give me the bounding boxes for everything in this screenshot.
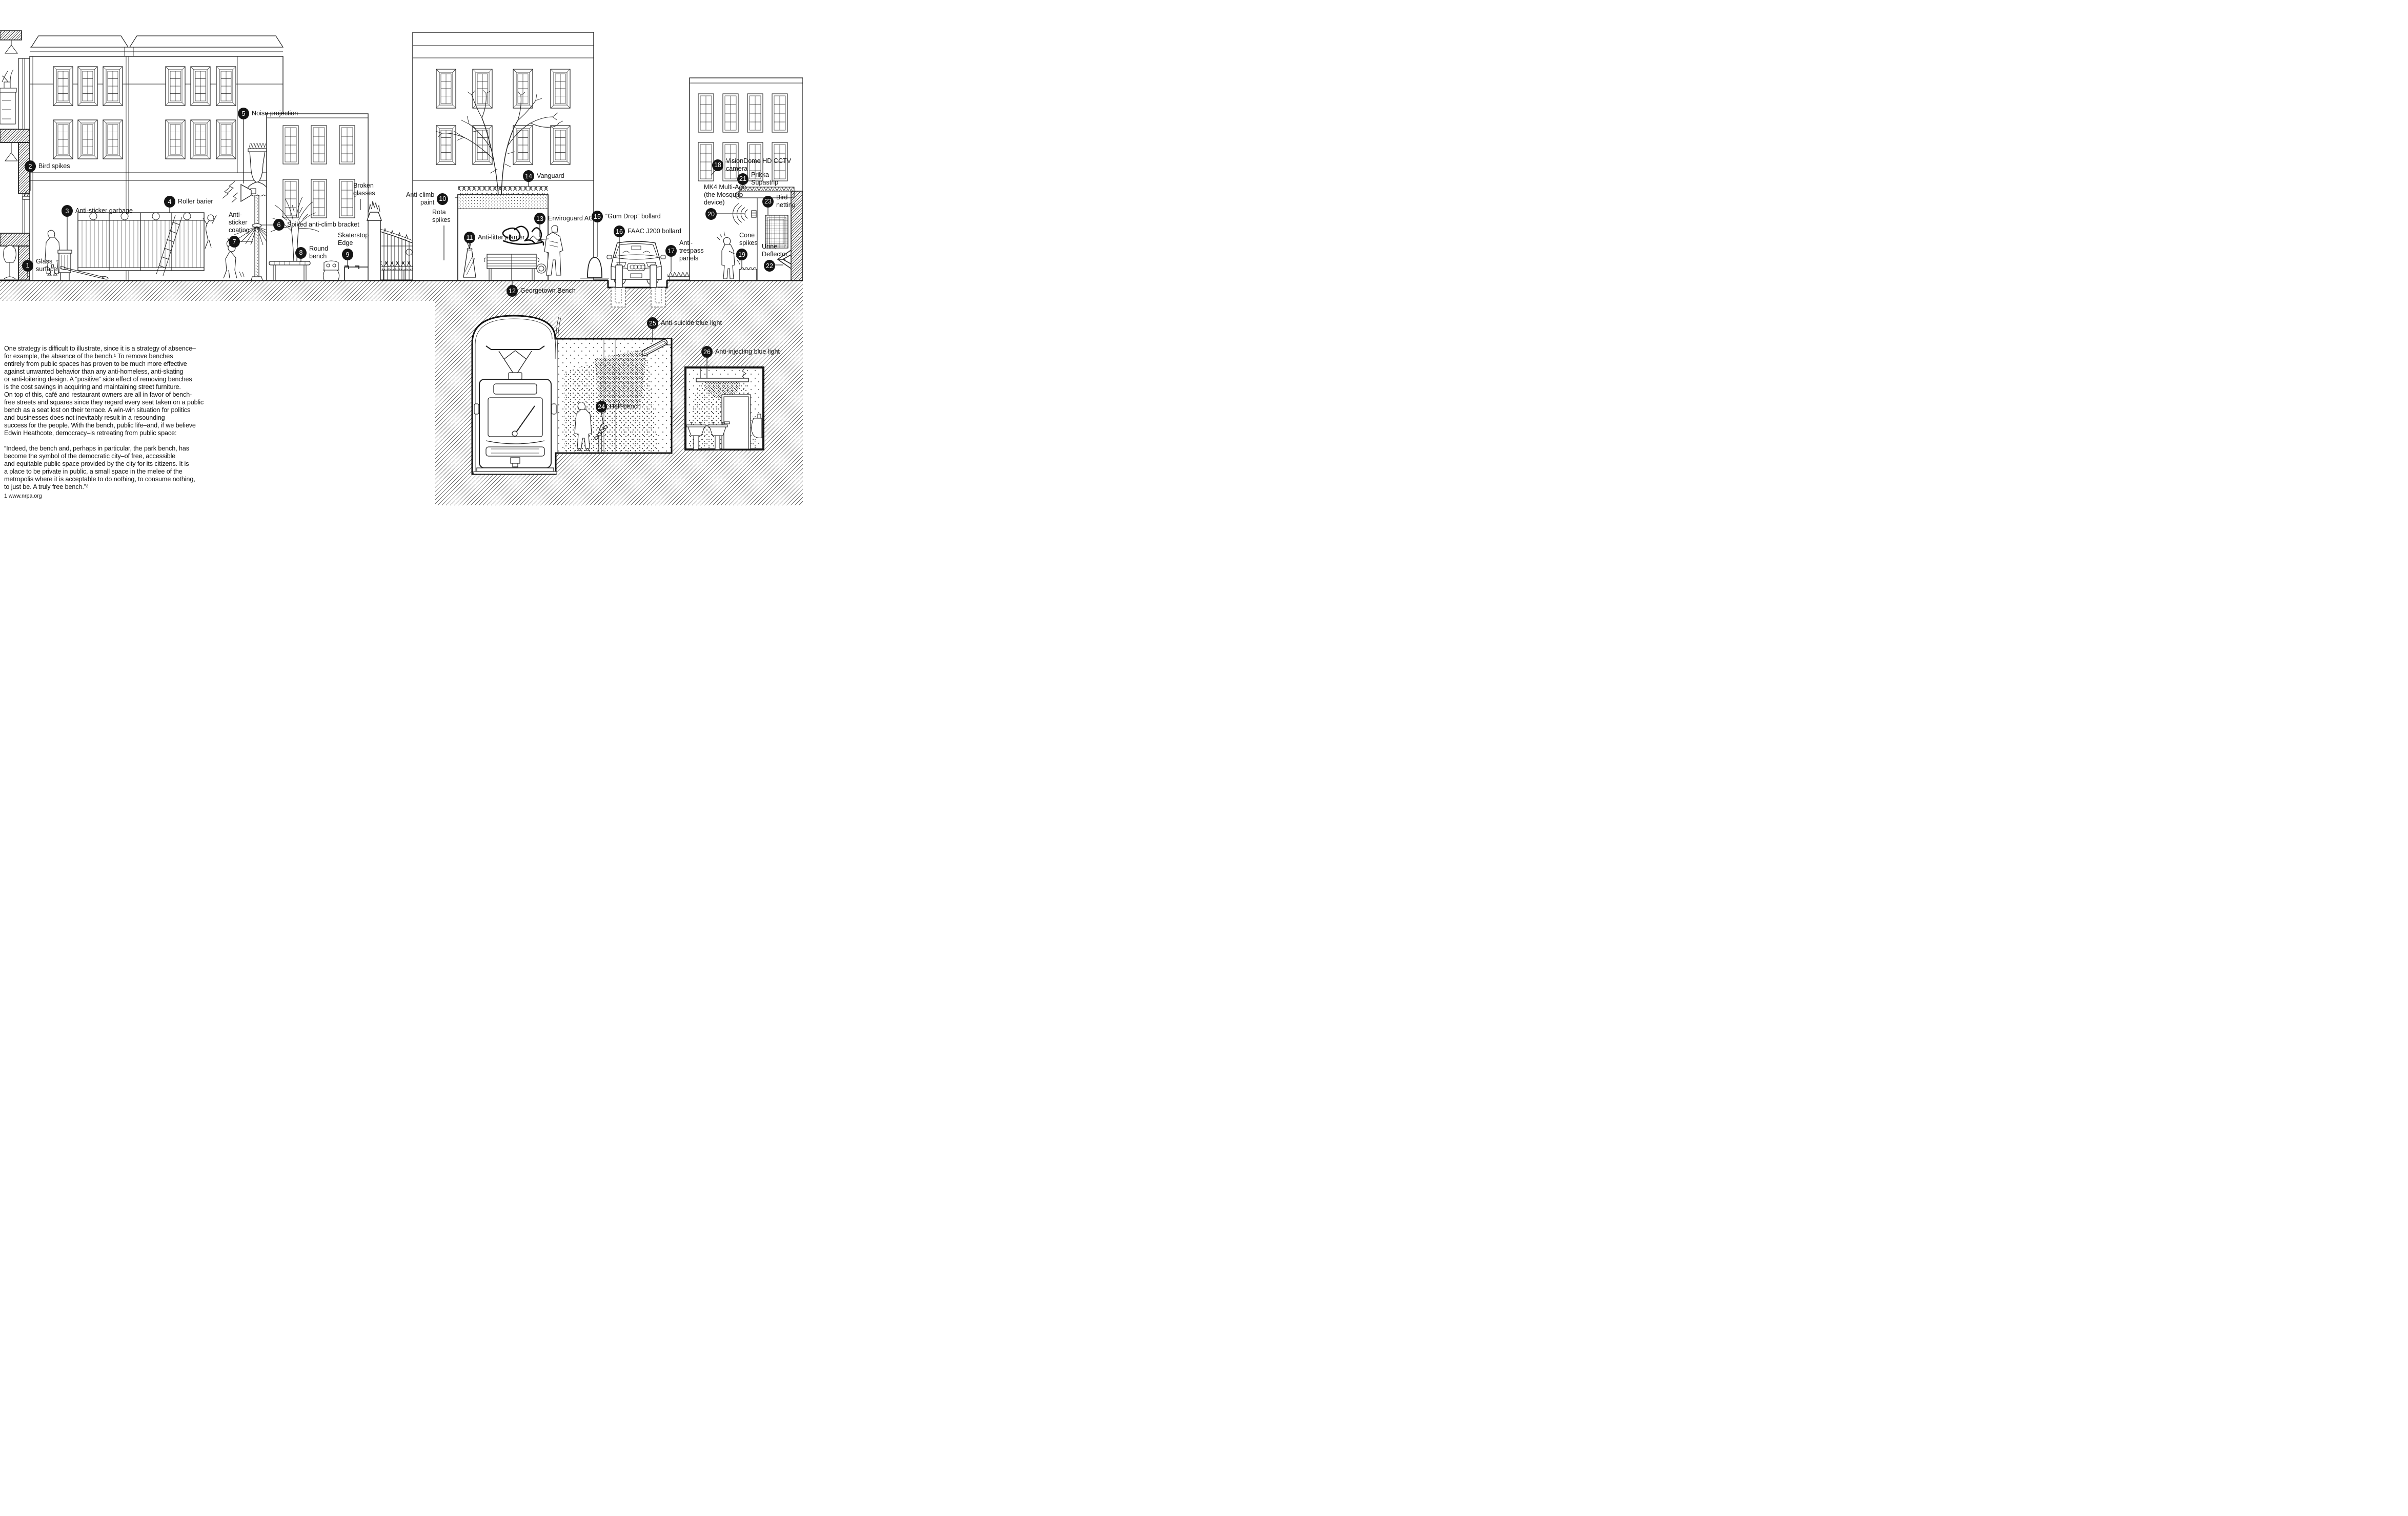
essay-quote: “Indeed, the bench and, perhaps in parti… <box>4 445 225 491</box>
callout-1: 1Glass surface <box>22 258 57 273</box>
callout-26: 26Anti-injecting blue light <box>701 346 780 358</box>
callout-20: MK4 Multi-Age (the Mosquito device)20 <box>704 183 746 220</box>
callout-5: 5Noise projection <box>238 108 298 119</box>
annotation-broken-glasses: Broken glasses <box>353 182 375 197</box>
callout-12: 12Georgetown Bench <box>507 285 576 297</box>
roller-barrier <box>78 213 204 276</box>
callout-17: 17Anti- trespass panels <box>665 239 704 262</box>
callout-19: Cone spikes19 <box>736 232 758 260</box>
callout-25: 25Anti-suicide blue light <box>647 317 722 329</box>
callout-18: 18VisionDome HD CCTV camera <box>712 157 803 173</box>
callout-13: 13Enviroguard AG <box>534 213 594 224</box>
restroom-drawing <box>685 367 763 449</box>
callout-23: 23Bird netting <box>762 194 796 209</box>
callout-10: Anti-climb paint10 <box>406 191 448 207</box>
diagram-page: 1Glass surface 2Bird spikes 3Anti-sticke… <box>0 0 803 505</box>
callout-6: 6Spiked anti-climb bracket <box>273 219 359 231</box>
callout-11: 11Anti-litter planter <box>464 232 525 243</box>
skaterstop-ledge <box>345 266 368 280</box>
callout-16: 16FAAC J200 bollard <box>614 226 681 237</box>
callout-4: 4Roller barier <box>164 196 213 208</box>
callout-22: Urine Deflector22 <box>762 243 787 272</box>
annotation-rota-spikes: Rota spikes <box>432 209 451 224</box>
cone-spikes-drawing <box>739 268 757 280</box>
callout-24: 24Half-bench <box>596 401 641 413</box>
callout-21: 21Prikka Supastrip <box>737 171 778 187</box>
callout-9: Skaterstop Edge9 <box>338 232 369 260</box>
essay-text-block: One strategy is difficult to illustrate,… <box>4 337 225 499</box>
callout-7: Anti- sticker coating7 <box>229 211 250 248</box>
footnote-1: 1 www.nrpa.org <box>4 493 42 499</box>
callout-8: 8Round bench <box>295 245 328 260</box>
callout-3: 3Anti-sticker garbage <box>62 205 133 217</box>
vanguard-razor-wire <box>458 187 548 195</box>
callout-15: 15“Gum Drop” bollard <box>592 211 661 222</box>
essay-paragraph: One strategy is difficult to illustrate,… <box>4 345 204 437</box>
footnotes: 1 www.nrpa.org 2 Edwin Heathcote, in “Pu… <box>4 486 225 505</box>
callout-2: 2Bird spikes <box>25 160 70 172</box>
anti-climb-paint-band <box>458 195 548 209</box>
prikka-supastrip-drawing <box>739 187 794 191</box>
callout-14: 14Vanguard <box>523 170 564 182</box>
